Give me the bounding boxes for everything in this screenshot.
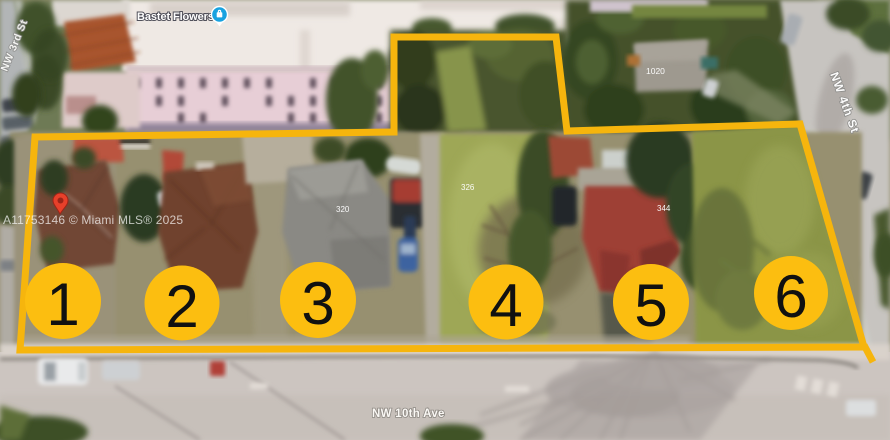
svg-text:2: 2 <box>165 273 198 340</box>
svg-text:326: 326 <box>461 183 475 192</box>
svg-text:3: 3 <box>301 270 334 337</box>
svg-text:1020: 1020 <box>646 66 665 76</box>
svg-text:A11753146 © Miami MLS® 2025: A11753146 © Miami MLS® 2025 <box>3 213 183 227</box>
svg-text:NW 10th Ave: NW 10th Ave <box>372 408 445 420</box>
svg-text:5: 5 <box>634 272 667 339</box>
svg-text:1: 1 <box>46 271 79 338</box>
svg-text:Bastet Flowers: Bastet Flowers <box>137 11 214 23</box>
svg-text:6: 6 <box>774 263 807 330</box>
svg-text:320: 320 <box>336 205 350 214</box>
svg-text:4: 4 <box>489 272 522 339</box>
svg-text:344: 344 <box>657 204 671 213</box>
